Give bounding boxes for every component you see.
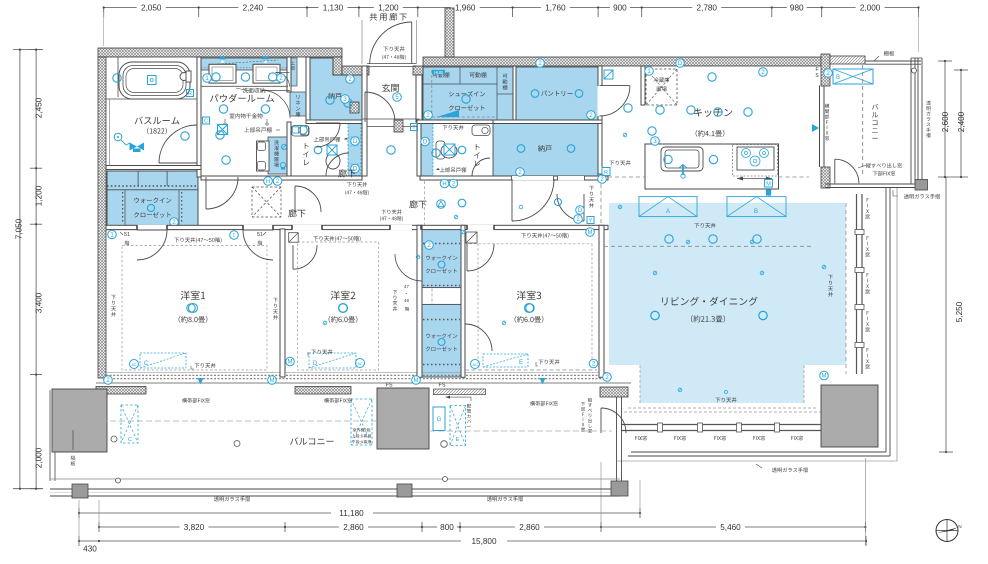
svg-text:C: C — [128, 437, 132, 443]
svg-text:1,200: 1,200 — [378, 3, 399, 12]
svg-text:2,450: 2,450 — [35, 97, 44, 118]
svg-text:5,250: 5,250 — [955, 301, 964, 322]
svg-text:FS: FS — [438, 383, 445, 389]
svg-text:51: 51 — [257, 232, 263, 238]
svg-text:3,400: 3,400 — [35, 292, 44, 313]
svg-text:FS: FS — [385, 383, 392, 389]
svg-text:C: C — [144, 361, 149, 367]
svg-text:11,180: 11,180 — [339, 509, 364, 518]
svg-text:M: M — [588, 230, 593, 236]
svg-text:D: D — [353, 167, 358, 173]
svg-text:D: D — [353, 139, 358, 145]
svg-text:15,800: 15,800 — [471, 537, 496, 546]
svg-text:N: N — [958, 524, 961, 529]
svg-text:A: A — [666, 209, 670, 215]
svg-text:Y: Y — [589, 218, 593, 224]
svg-text:2,780: 2,780 — [697, 3, 718, 12]
svg-text:51: 51 — [124, 232, 130, 238]
svg-text:48: 48 — [404, 298, 410, 303]
svg-text:5,460: 5,460 — [720, 523, 741, 532]
svg-text:2,050: 2,050 — [141, 3, 162, 12]
svg-text:900: 900 — [613, 3, 627, 12]
svg-text:7,050: 7,050 — [15, 218, 24, 239]
svg-text:2,240: 2,240 — [243, 3, 264, 12]
svg-text:B: B — [754, 209, 758, 215]
svg-text:R: R — [188, 91, 192, 97]
svg-text:430: 430 — [83, 545, 97, 554]
svg-text:C: C — [204, 119, 208, 125]
svg-text:47: 47 — [404, 284, 410, 289]
svg-text:2,400: 2,400 — [957, 111, 966, 132]
svg-text:2,000: 2,000 — [35, 447, 44, 468]
svg-text:M: M — [288, 360, 293, 366]
svg-text:M: M — [822, 374, 827, 380]
svg-text:2,000: 2,000 — [860, 3, 881, 12]
svg-text:E: E — [519, 360, 523, 366]
svg-text:H: H — [266, 179, 270, 185]
svg-text:・: ・ — [404, 291, 409, 296]
svg-text:D: D — [313, 361, 318, 367]
svg-text:1,130: 1,130 — [323, 3, 344, 12]
svg-text:AC: AC — [473, 363, 478, 367]
svg-text:H: H — [442, 182, 446, 188]
svg-text:800: 800 — [440, 523, 454, 532]
svg-text:B: B — [836, 75, 840, 81]
svg-text:D: D — [423, 140, 428, 146]
svg-text:D: D — [678, 61, 683, 67]
svg-text:980: 980 — [790, 3, 804, 12]
svg-text:AC: AC — [358, 362, 363, 366]
svg-text:M: M — [414, 378, 419, 384]
svg-text:G: G — [437, 417, 442, 423]
svg-text:1,760: 1,760 — [545, 3, 566, 12]
svg-text:D: D — [578, 208, 583, 214]
svg-text:2,860: 2,860 — [343, 523, 364, 532]
svg-text:2,600: 2,600 — [941, 111, 950, 132]
svg-text:2,860: 2,860 — [519, 523, 540, 532]
svg-text:1,200: 1,200 — [35, 185, 44, 206]
svg-text:HUB: HUB — [434, 70, 443, 75]
svg-text:M: M — [270, 378, 275, 384]
svg-text:E: E — [456, 437, 460, 443]
svg-text:R: R — [604, 170, 608, 176]
svg-text:1,960: 1,960 — [455, 3, 476, 12]
svg-text:AC: AC — [132, 363, 137, 367]
svg-text:3,820: 3,820 — [184, 523, 205, 532]
svg-text:M: M — [766, 182, 771, 188]
